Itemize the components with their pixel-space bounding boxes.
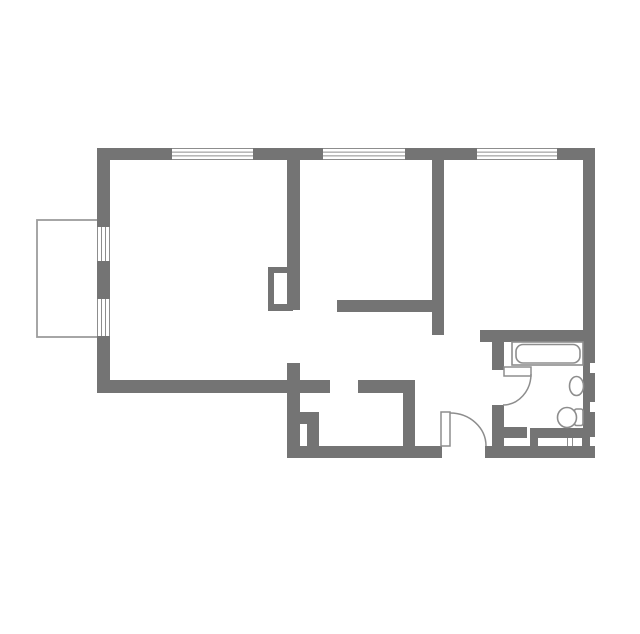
wall-notch-2 <box>590 402 595 412</box>
bathtub-inner <box>516 345 580 364</box>
floorplan-canvas <box>0 0 640 634</box>
entry-door-leaf <box>441 412 450 446</box>
window-top-1 <box>172 148 253 160</box>
wall-bottom-b <box>485 446 595 458</box>
window-top-2 <box>323 148 405 160</box>
wall-notch-3 <box>590 437 595 446</box>
wall-notch-1 <box>590 363 595 373</box>
sink-basin <box>570 377 584 396</box>
window-left-2 <box>97 299 110 336</box>
wall-bedroom1-door-stub <box>287 363 300 380</box>
wall-bottom-a <box>287 446 442 458</box>
wall-bathroom-left-a <box>492 342 504 370</box>
window-left-1 <box>97 227 110 261</box>
wall-bathroom-door-stub <box>504 427 527 438</box>
wall-hall-west <box>403 380 415 446</box>
bathroom-door-leaf <box>504 367 531 376</box>
wall-top-c <box>405 148 477 160</box>
window-top-3 <box>477 148 557 160</box>
toilet-bowl <box>558 408 577 428</box>
floorplan-svg <box>0 0 640 634</box>
entry-door-arc <box>450 413 486 446</box>
wall-top-b <box>253 148 323 160</box>
ledge-recess <box>538 438 582 446</box>
wall-bedroom2-left <box>432 160 444 335</box>
wall-bathroom-left-b <box>492 405 504 446</box>
wall-left-b <box>97 261 110 299</box>
bathroom-door-arc <box>503 374 531 405</box>
wall-bedroom1-bottom <box>337 300 432 312</box>
wall-duct-right <box>307 412 319 447</box>
wall-left-a <box>97 148 110 227</box>
bedroom1-door-frame-inner <box>274 273 287 304</box>
wall-bathroom-top <box>480 330 595 342</box>
balcony-outline <box>37 220 99 337</box>
